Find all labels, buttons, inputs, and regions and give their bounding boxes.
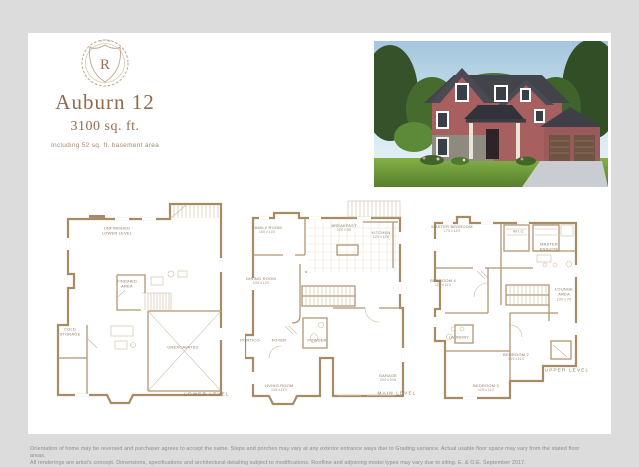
room-label-living-room: LIVING ROOM13'6 x 11'0 (265, 383, 294, 393)
room-label-bedroom-3: BEDROOM 312'6 x 11'0 (473, 383, 499, 393)
plan-label-lower-level: LOWER LEVEL (184, 392, 230, 397)
disclaimer: Orientation of home may be reversed and … (30, 446, 595, 467)
page-background: R Auburn 12 3100 sq. ft. Including 52 sq… (0, 0, 639, 467)
room-label-breakfast: BREAKFAST12'0 x 9'6 (331, 223, 356, 233)
model-square-footage: 3100 sq. ft. (15, 119, 195, 135)
room-label-portico: PORTICO (240, 337, 260, 342)
room-label-wic: W.I.C. (513, 228, 525, 233)
crest-letter: R (100, 57, 110, 73)
room-label-finished-area: FINISHED AREA (117, 279, 137, 290)
model-title: Auburn 12 (15, 90, 195, 115)
room-label-master-ensuite: MASTER ENSUITE (540, 242, 559, 253)
room-label-unfinished-lower: UNFINISHED LOWER LEVEL (102, 226, 132, 237)
room-label-powder: POWDER (307, 337, 326, 342)
plan-label-main-level: MAIN LEVEL (377, 391, 416, 396)
room-label-cold-storage: COLD STORAGE (60, 327, 81, 338)
room-label-foyer: FOYER (272, 337, 287, 342)
disclaimer-line-1: Orientation of home may be reversed and … (30, 446, 595, 460)
disclaimer-line-2: All renderings are artist's concept. Dim… (30, 460, 595, 467)
house-rendering-image (374, 41, 608, 187)
brand-crest-icon: R (75, 36, 135, 94)
floorplan-lower-level (45, 198, 237, 410)
room-label-laundry: LAUNDRY (449, 334, 469, 339)
room-label-bedroom-4: BEDROOM 412'0 x 11'6 (430, 278, 456, 288)
room-label-unexcavated: UNEXCAVATED (167, 344, 198, 349)
room-label-family-room: FAMILY ROOM18'0 x 13'0 (252, 225, 282, 235)
room-label-garage: GARAGE20'0 x 20'6 (379, 373, 397, 383)
room-label-master-bedroom: MASTER BEDROOM17'0 x 14'0 (431, 224, 472, 234)
room-label-kitchen: KITCHEN12'0 x 12'6 (372, 230, 391, 240)
room-label-bedroom-2: BEDROOM 214'6 x 11'0 (503, 352, 529, 362)
floorplan-upper-level (433, 213, 583, 405)
room-label-dining-room: DINING ROOM13'6 x 12'0 (246, 276, 276, 286)
room-label-lounge-area: LOUNGE AREA10'0 x 7'6 (555, 286, 573, 301)
plan-label-upper-level: UPPER LEVEL (545, 368, 590, 373)
basement-area-note: Including 52 sq. ft. basement area (15, 142, 195, 149)
